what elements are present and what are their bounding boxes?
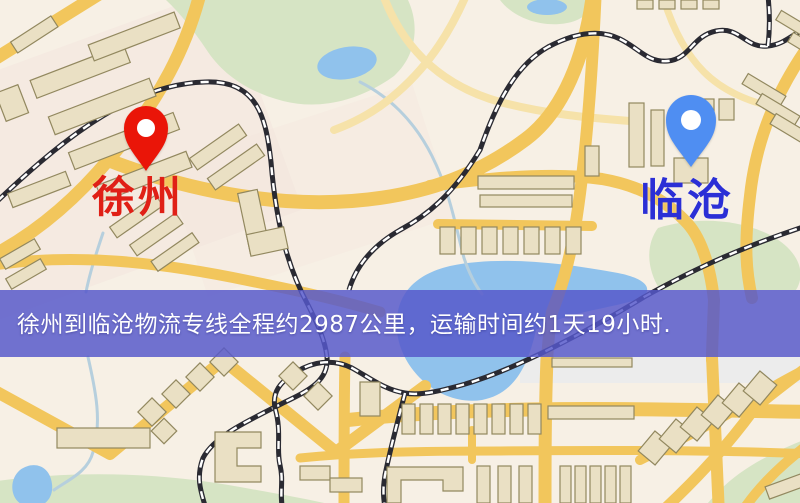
route-info-banner: 徐州到临沧物流专线全程约2987公里，运输时间约1天19小时. bbox=[0, 290, 800, 357]
destination-marker[interactable] bbox=[665, 95, 717, 167]
route-info-text: 徐州到临沧物流专线全程约2987公里，运输时间约1天19小时. bbox=[17, 305, 671, 339]
destination-city-label: 临沧 bbox=[640, 179, 734, 223]
map-canvas: 徐州到临沧物流专线全程约2987公里，运输时间约1天19小时. 徐州 临沧 bbox=[0, 0, 800, 503]
red-map-pin-icon[interactable] bbox=[123, 105, 169, 171]
blue-map-pin-icon[interactable] bbox=[665, 95, 717, 167]
map-background bbox=[0, 0, 800, 503]
origin-city-label: 徐州 bbox=[92, 177, 184, 220]
origin-marker[interactable] bbox=[123, 105, 169, 171]
